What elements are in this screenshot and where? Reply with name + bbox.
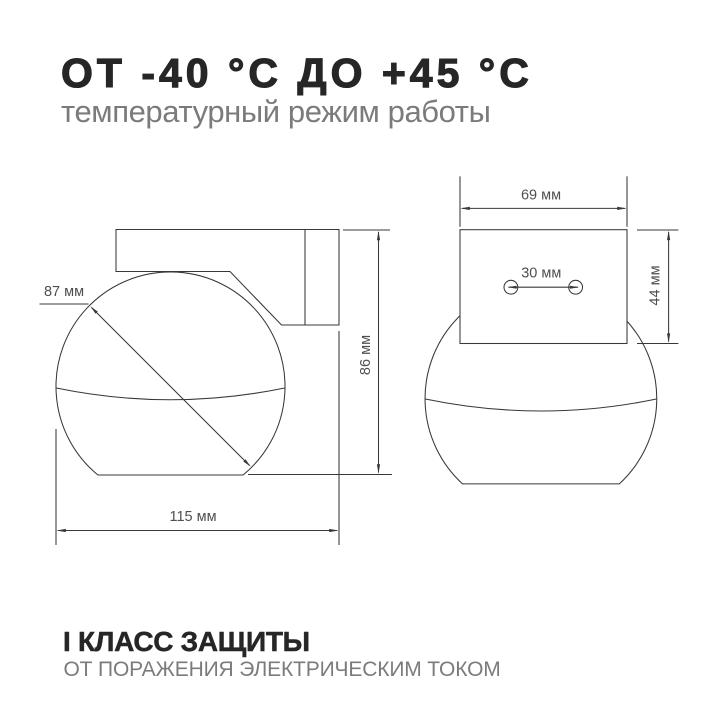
svg-text:30 мм: 30 мм xyxy=(521,266,561,282)
svg-text:86 мм: 86 мм xyxy=(358,335,374,375)
svg-text:87 мм: 87 мм xyxy=(44,284,84,300)
svg-text:44 мм: 44 мм xyxy=(648,265,664,305)
svg-text:115 мм: 115 мм xyxy=(169,509,216,525)
svg-text:69 мм: 69 мм xyxy=(521,188,561,204)
